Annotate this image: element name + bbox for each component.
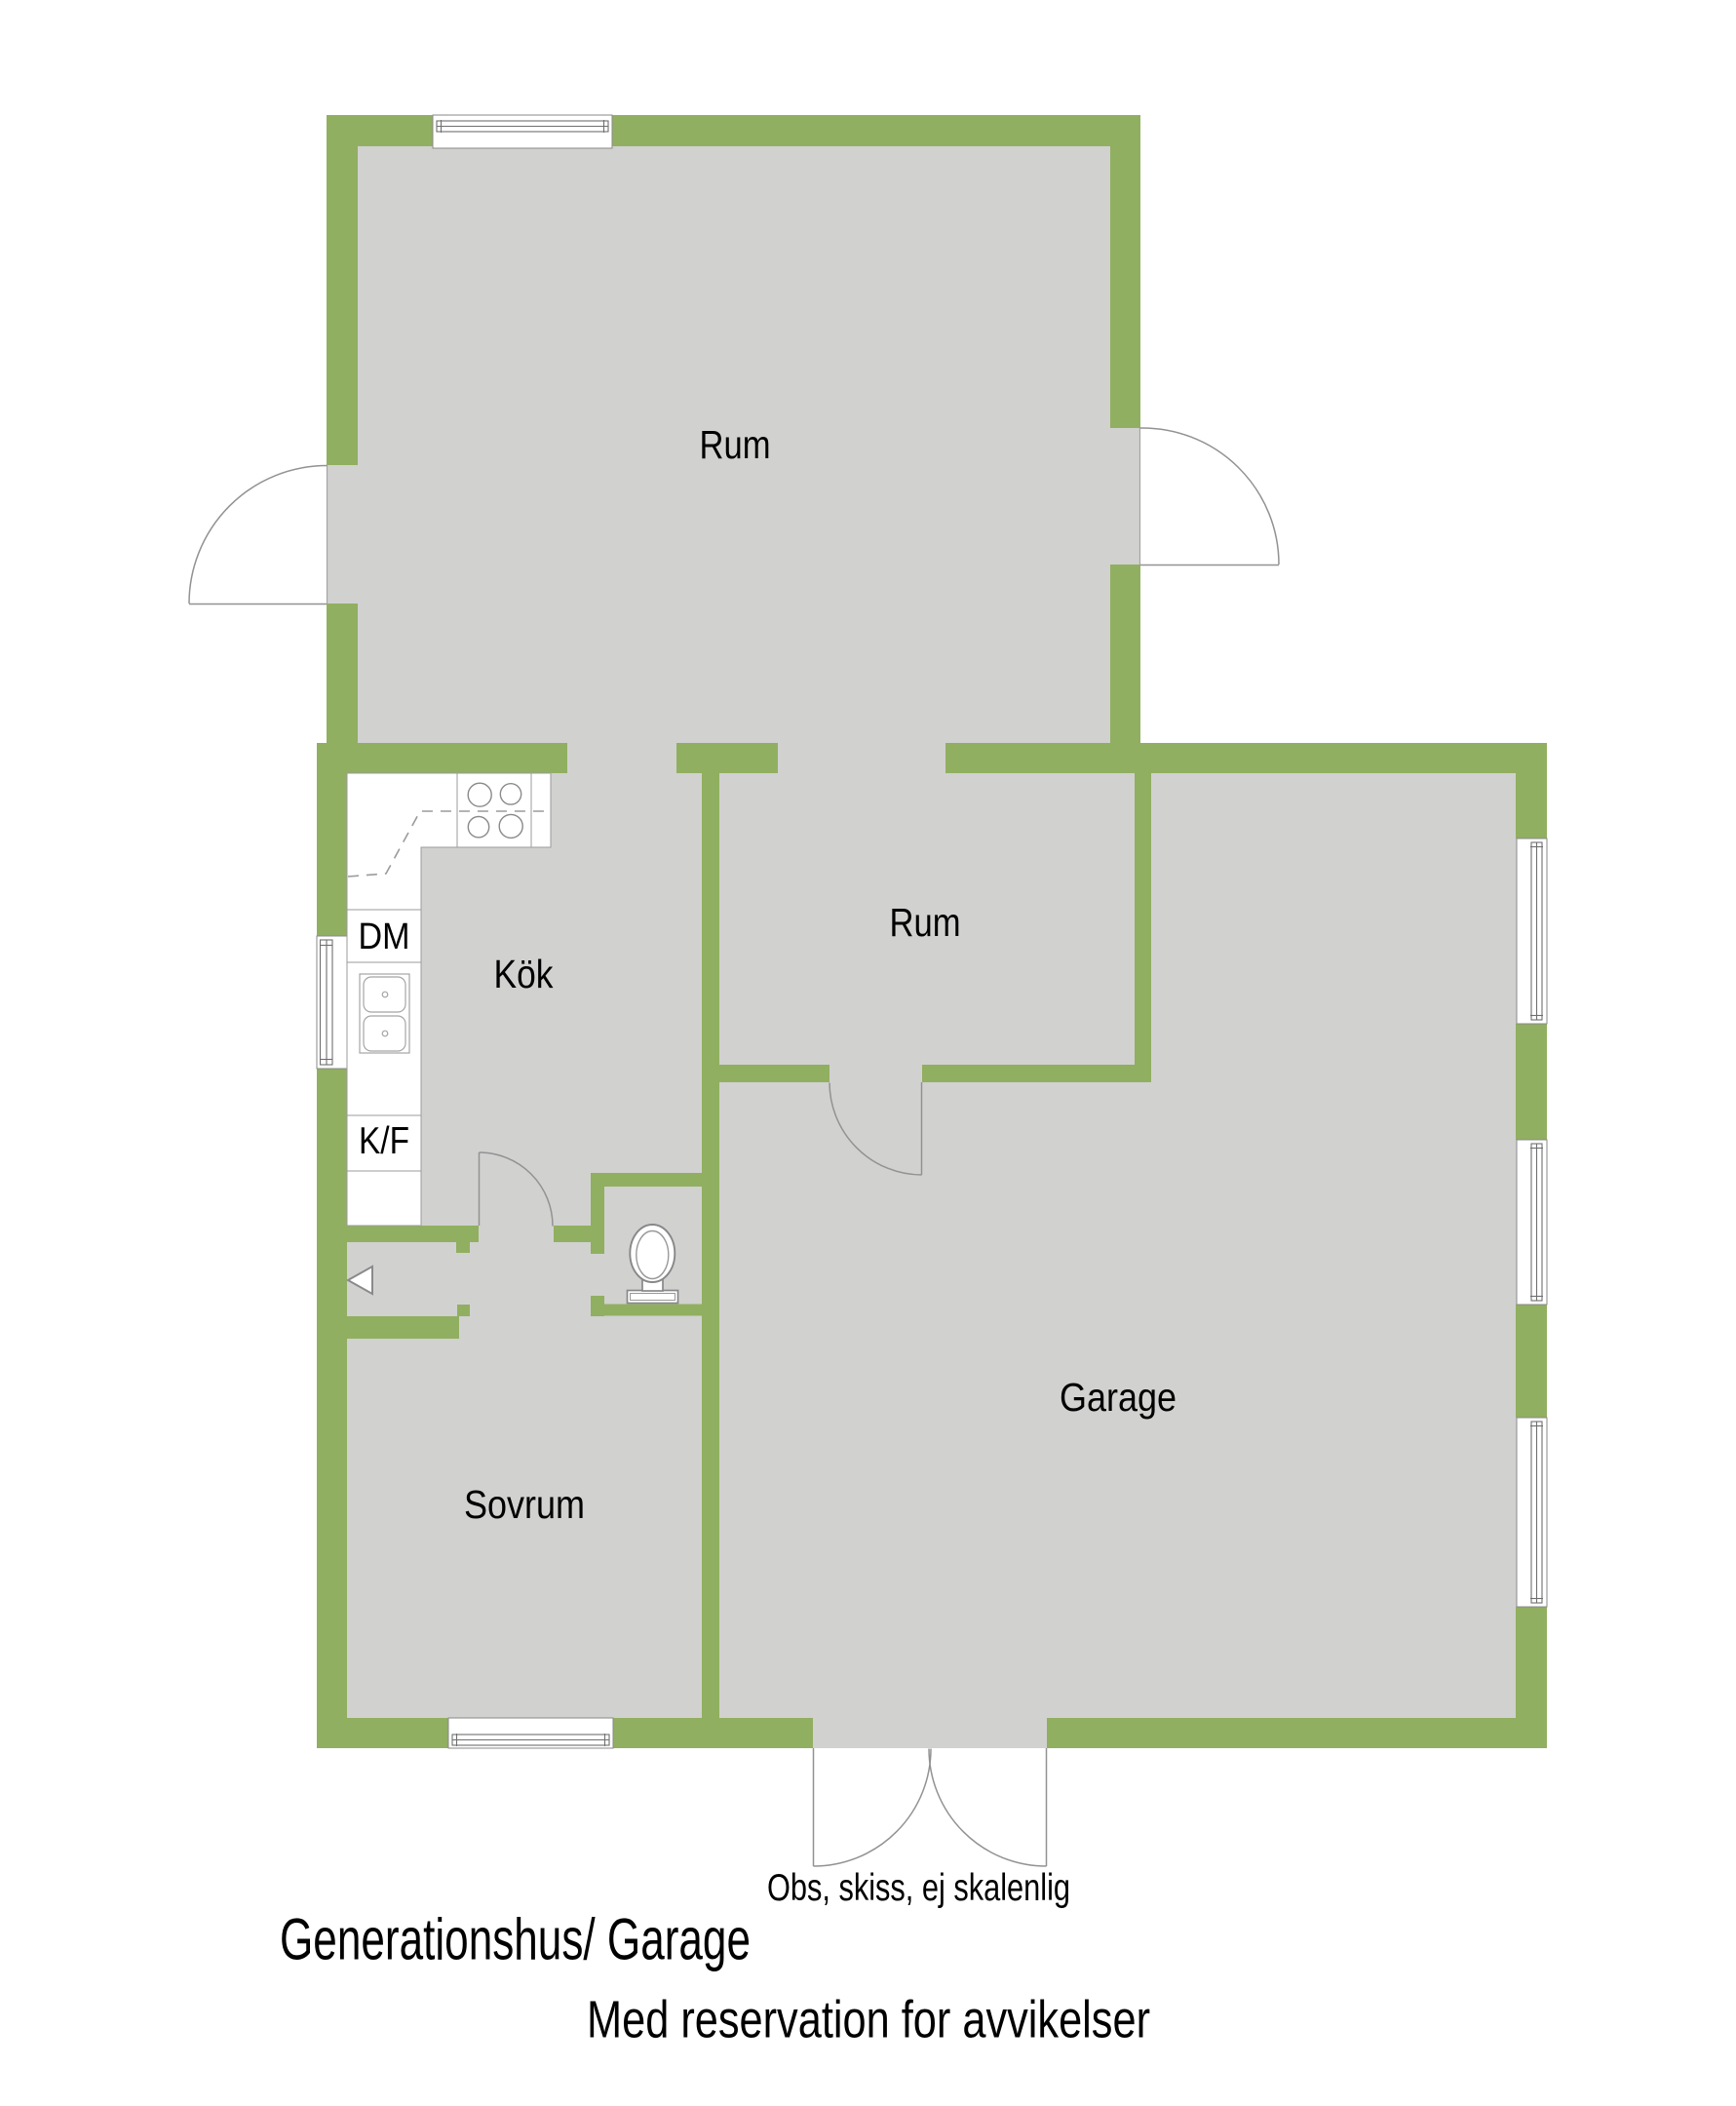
svg-text:DM: DM — [359, 916, 410, 957]
svg-text:Rum: Rum — [700, 422, 771, 467]
svg-text:Kök: Kök — [494, 952, 554, 996]
svg-text:K/F: K/F — [359, 1120, 409, 1162]
svg-text:Obs, skiss, ej skalenlig: Obs, skiss, ej skalenlig — [767, 1867, 1070, 1909]
svg-text:Garage: Garage — [1060, 1375, 1177, 1420]
svg-text:Rum: Rum — [890, 900, 961, 945]
svg-text:Sovrum: Sovrum — [464, 1482, 585, 1527]
svg-text:Med reservation for avvikelser: Med reservation for avvikelser — [587, 1991, 1150, 2049]
svg-text:Generationshus/ Garage: Generationshus/ Garage — [280, 1907, 751, 1972]
